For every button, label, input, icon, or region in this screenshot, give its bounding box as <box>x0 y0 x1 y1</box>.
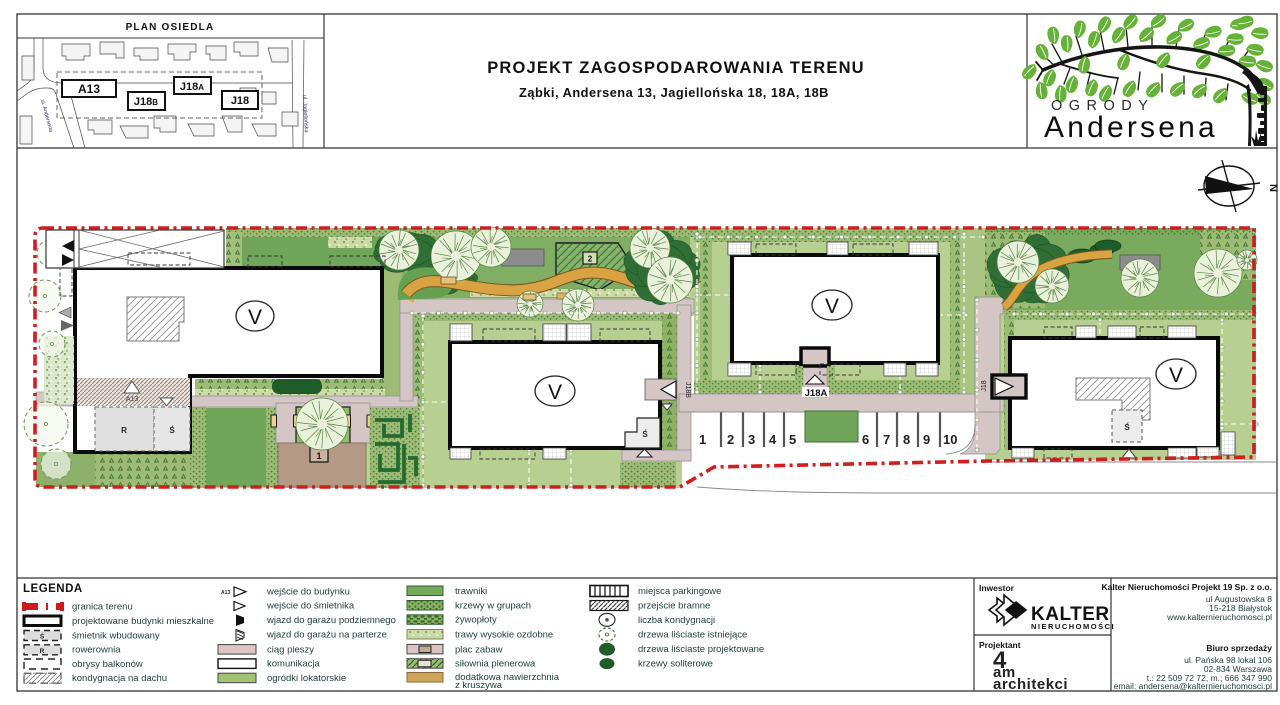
svg-text:drzewa liściaste istniejące: drzewa liściaste istniejące <box>638 630 747 641</box>
svg-text:LEGENDA: LEGENDA <box>23 583 83 595</box>
svg-text:z kruszywa: z kruszywa <box>455 680 503 691</box>
svg-text:granica terenu: granica terenu <box>72 602 133 613</box>
svg-text:ogródki lokatorskie: ogródki lokatorskie <box>267 673 346 684</box>
svg-text:wjazd do garażu na parterze: wjazd do garażu na parterze <box>266 630 387 641</box>
svg-text:miejsca parkingowe: miejsca parkingowe <box>638 586 721 597</box>
svg-text:wjazd do garażu podziemnego: wjazd do garażu podziemnego <box>266 615 396 626</box>
svg-text:trawniki: trawniki <box>455 586 487 597</box>
svg-text:Biuro sprzedaży: Biuro sprzedaży <box>1206 643 1272 653</box>
svg-text:Inwestor: Inwestor <box>979 583 1015 593</box>
svg-text:Ś: Ś <box>40 632 45 641</box>
svg-text:kondygnacja na dachu: kondygnacja na dachu <box>72 673 167 684</box>
svg-text:R: R <box>40 648 45 655</box>
svg-text:przejście bramne: przejście bramne <box>638 601 710 612</box>
svg-text:ciąg pieszy: ciąg pieszy <box>267 644 314 655</box>
svg-text:komunikacja: komunikacja <box>267 659 321 670</box>
svg-text:trawy wysokie ozdobne: trawy wysokie ozdobne <box>455 629 553 640</box>
svg-text:plac zabaw: plac zabaw <box>455 644 503 655</box>
svg-text:A13: A13 <box>221 590 230 596</box>
svg-text:śmietnik wbudowany: śmietnik wbudowany <box>72 630 160 641</box>
svg-text:wejście do budynku: wejście do budynku <box>266 587 350 598</box>
svg-text:żywopłoty: żywopłoty <box>455 615 497 626</box>
svg-text:wejście do śmietnika: wejście do śmietnika <box>266 601 355 612</box>
svg-text:email: andersena@kalternieruch: email: andersena@kalternieruchomosci.pl <box>1114 681 1273 691</box>
svg-text:drzewa liściaste projektowane: drzewa liściaste projektowane <box>638 644 764 655</box>
svg-text:siłownia plenerowa: siłownia plenerowa <box>455 659 536 670</box>
svg-text:www.kalternieruchomosci.pl: www.kalternieruchomosci.pl <box>1166 612 1272 622</box>
svg-text:krzewy soliterowe: krzewy soliterowe <box>638 659 713 670</box>
svg-text:obrysy balkonów: obrysy balkonów <box>72 659 143 670</box>
svg-text:krzewy w grupach: krzewy w grupach <box>455 600 531 611</box>
svg-text:rowerownia: rowerownia <box>72 645 121 656</box>
svg-text:architekci: architekci <box>993 676 1068 693</box>
svg-text:NIERUCHOMOŚCI: NIERUCHOMOŚCI <box>1031 622 1115 631</box>
svg-text:liczba kondygnacji: liczba kondygnacji <box>638 615 715 626</box>
svg-text:Kalter Nieruchomości Projekt 1: Kalter Nieruchomości Projekt 19 Sp. z o.… <box>1101 582 1272 592</box>
svg-text:projektowane budynki mieszkaln: projektowane budynki mieszkalne <box>72 616 214 627</box>
